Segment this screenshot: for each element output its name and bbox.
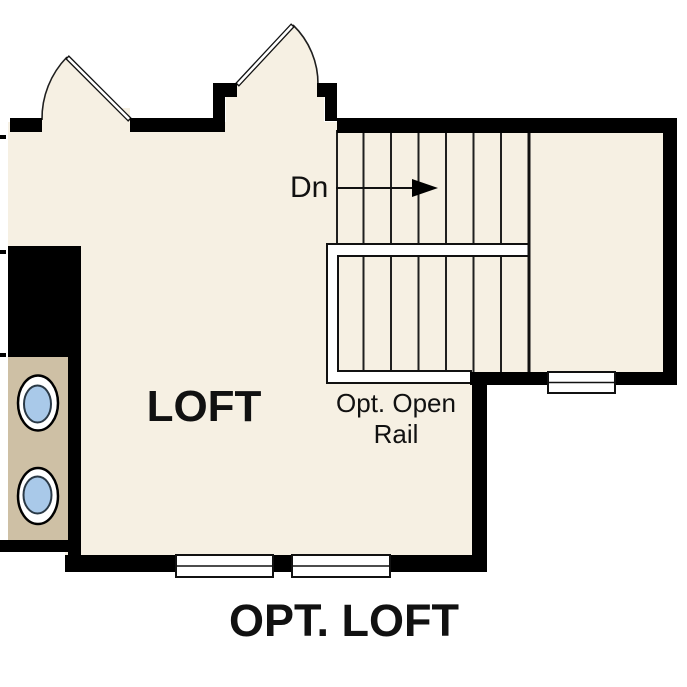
plan-title: OPT. LOFT: [229, 595, 459, 646]
doorway-floor-right: [226, 84, 324, 134]
wall-cut-mark: [0, 250, 6, 254]
sink-bowl: [24, 386, 51, 423]
window-landing: [548, 372, 615, 393]
vanity: [8, 357, 68, 540]
rail-note-line2: Rail: [374, 419, 419, 449]
window-bottom-mid: [292, 555, 390, 577]
rail-note-line1: Opt. Open: [336, 388, 456, 418]
vanity-bottom-wall: [0, 540, 68, 552]
floor-plan-page: Dn LOFT Opt. Open Rail OPT. LOFT: [0, 0, 687, 687]
vanity-right-wall: [68, 357, 81, 572]
room-label: LOFT: [147, 382, 262, 431]
wall-cut-mark: [0, 353, 6, 357]
closet-block: [8, 246, 81, 357]
top-wall-left: [10, 118, 42, 132]
loft-right-wall: [472, 372, 487, 572]
door-jog-right-top: [317, 83, 337, 97]
window-bottom-left: [176, 555, 273, 577]
top-wall-right: [337, 118, 677, 133]
sink-bowl: [24, 477, 52, 514]
right-wall: [663, 118, 677, 385]
floor-plan-drawing: Dn LOFT Opt. Open Rail OPT. LOFT: [0, 0, 687, 687]
top-wall-mid: [130, 118, 213, 132]
loft-bottom-wall: [65, 555, 487, 572]
wall-cut-mark: [0, 135, 6, 139]
door-jog-right-side: [325, 95, 337, 121]
door-jog-left-side: [213, 83, 225, 132]
stair-direction-label: Dn: [290, 171, 328, 204]
